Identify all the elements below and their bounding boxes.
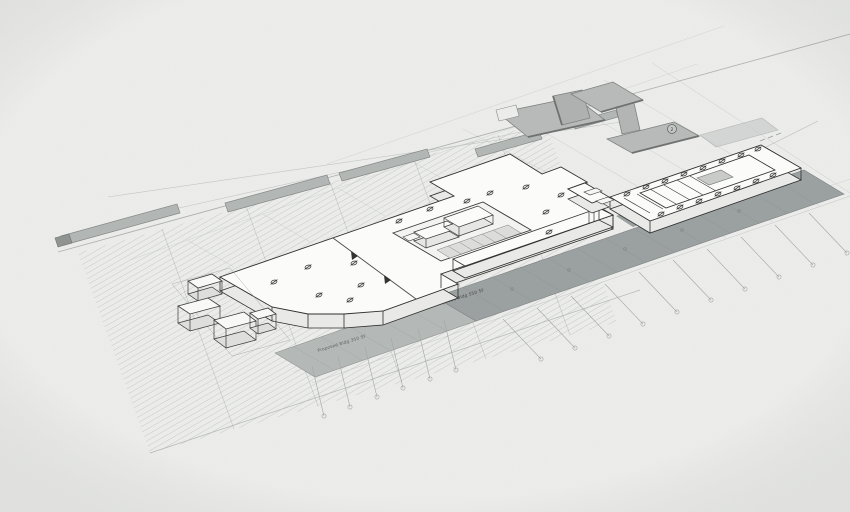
site-plan-canvas: Proposed Bldg 350 SF Proposed Bldg 550 S… bbox=[0, 0, 850, 512]
paper-vignette bbox=[0, 0, 850, 512]
drawing-sheet: Proposed Bldg 350 SF Proposed Bldg 550 S… bbox=[0, 0, 850, 512]
